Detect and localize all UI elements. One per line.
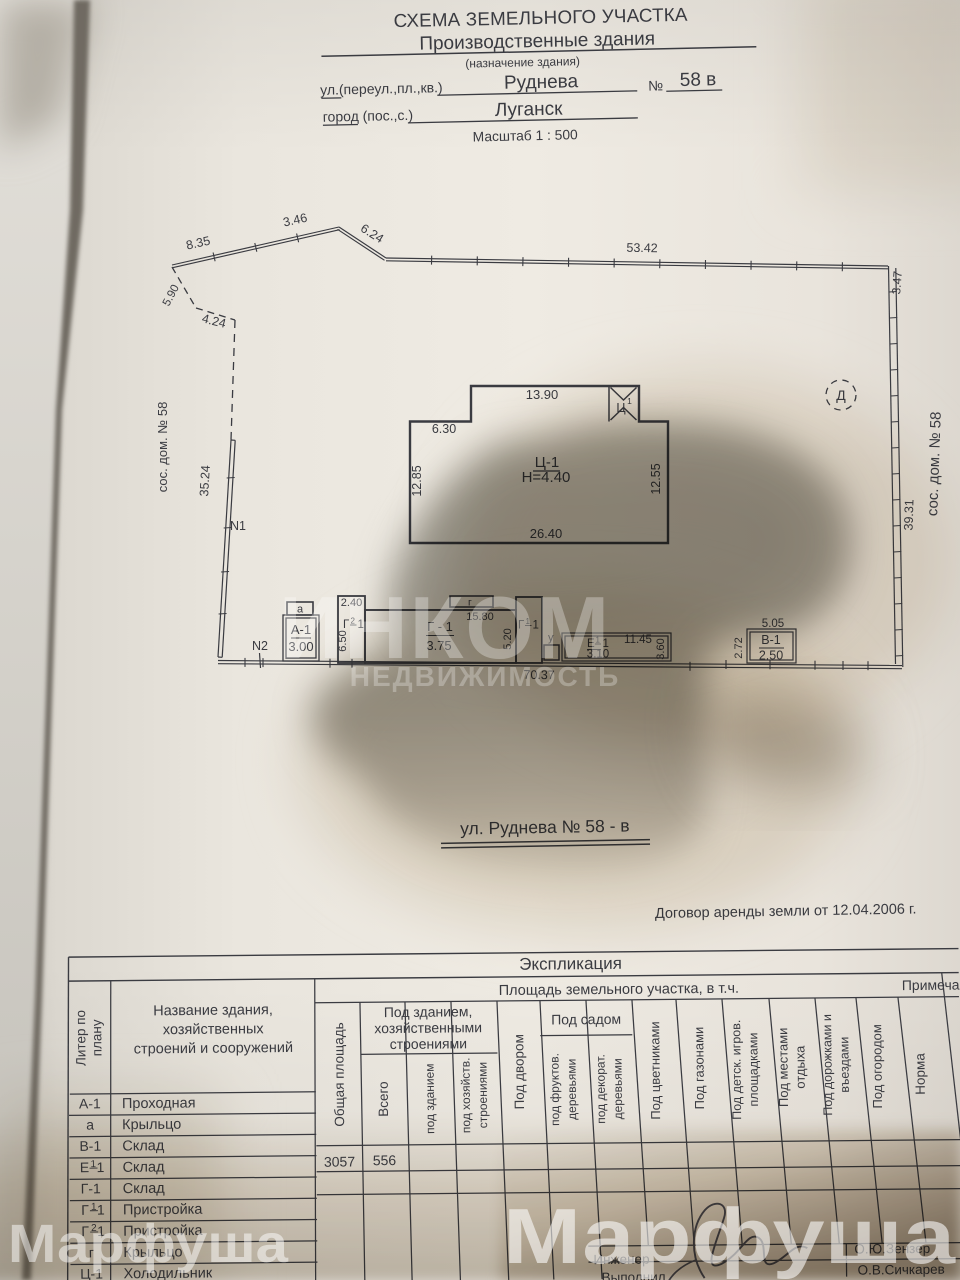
svg-text:въездами: въездами	[837, 1037, 852, 1093]
svg-text:Общая площадь: Общая площадь	[331, 1022, 347, 1126]
svg-text:сос. дом. № 58: сос. дом. № 58	[155, 402, 170, 493]
svg-text:строений и сооружений: строений и сооружений	[134, 1040, 293, 1058]
svg-text:отдыха: отдыха	[792, 1045, 807, 1089]
svg-text:НЕДВИЖИМОСТЬ: НЕДВИЖИМОСТЬ	[350, 661, 620, 692]
svg-text:Под цветниками: Под цветниками	[647, 1021, 663, 1119]
svg-text:плану: плану	[89, 1019, 104, 1056]
svg-text:Д: Д	[836, 387, 846, 403]
svg-text:Площадь земельного участка, в: Площадь земельного участка, в т.ч.	[499, 981, 739, 999]
svg-text:Под двором: Под двором	[511, 1034, 527, 1109]
svg-text:деревьями: деревьями	[565, 1059, 580, 1120]
svg-text:12.85: 12.85	[410, 465, 424, 496]
svg-text:(назначение здания): (назначение здания)	[465, 54, 580, 70]
svg-text:N1: N1	[230, 519, 246, 533]
svg-text:строениями: строениями	[390, 1035, 468, 1052]
svg-text:Литер по: Литер по	[73, 1010, 89, 1066]
svg-text:№: №	[648, 77, 663, 93]
svg-text:53.42: 53.42	[626, 241, 658, 256]
svg-text:3.47: 3.47	[889, 270, 905, 295]
svg-text:площадками: площадками	[746, 1033, 761, 1107]
svg-text:хозяйственных: хозяйственных	[163, 1021, 265, 1038]
svg-text:Масштаб 1 : 500: Масштаб 1 : 500	[473, 127, 579, 144]
svg-text:Под огородом: Под огородом	[869, 1024, 885, 1109]
svg-text:6.30: 6.30	[432, 422, 456, 436]
svg-text:N2: N2	[252, 639, 268, 653]
svg-text:Луганск: Луганск	[495, 99, 564, 121]
svg-text:58 в: 58 в	[680, 69, 717, 91]
svg-text:13.90: 13.90	[526, 387, 559, 402]
svg-text:Под зданием,: Под зданием,	[384, 1003, 473, 1020]
svg-text:ул.(переул.,пл.,кв.): ул.(переул.,пл.,кв.)	[320, 79, 443, 98]
svg-text:35.24: 35.24	[197, 465, 213, 497]
svg-text:Марфуша: Марфуша	[8, 1214, 289, 1274]
svg-text:Под садом: Под садом	[551, 1011, 621, 1028]
svg-text:Всего: Всего	[376, 1081, 391, 1117]
svg-text:Марфуша: Марфуша	[503, 1192, 956, 1280]
svg-text:Под газонами: Под газонами	[691, 1027, 707, 1110]
svg-text:Под детск. игров.: Под детск. игров.	[729, 1020, 744, 1120]
svg-text:под декорат.: под декорат.	[593, 1054, 608, 1124]
svg-text:Примечание: Примечание	[902, 976, 960, 993]
svg-text:хозяйственными: хозяйственными	[374, 1019, 482, 1036]
svg-text:Под местами: Под местами	[775, 1028, 791, 1108]
svg-text:Норма: Норма	[912, 1053, 927, 1095]
svg-text:деревьями: деревьями	[611, 1058, 626, 1119]
svg-text:Название здания,: Название здания,	[153, 1002, 273, 1019]
svg-text:Под дорожками и: Под дорожками и	[820, 1014, 835, 1116]
svg-text:город (пос.,с.): город (пос.,с.)	[323, 107, 414, 125]
svg-text:Экспликация: Экспликация	[519, 954, 622, 974]
svg-text:Руднева: Руднева	[504, 71, 579, 94]
svg-text:под фруктов.: под фруктов.	[547, 1053, 562, 1126]
